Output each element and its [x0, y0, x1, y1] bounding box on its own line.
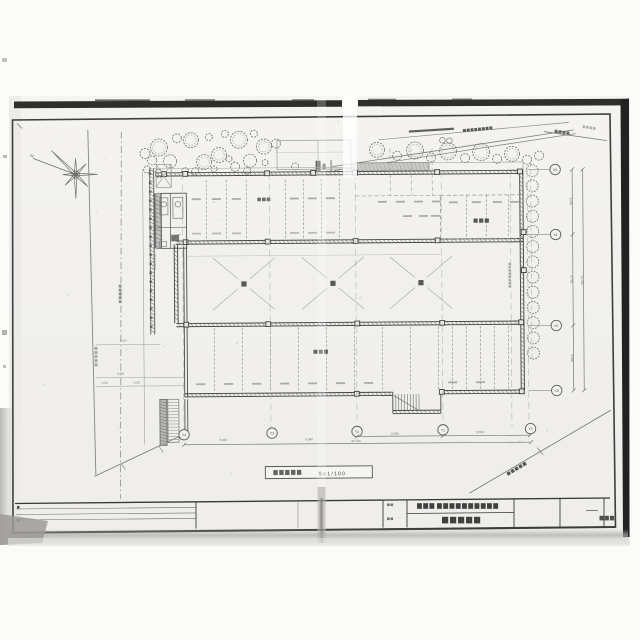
svg-text:Y2: Y2 [355, 430, 359, 434]
svg-text:92,700: 92,700 [351, 439, 361, 443]
svg-text:5,000: 5,000 [120, 339, 127, 343]
svg-text:5,000: 5,000 [101, 381, 108, 385]
svg-text:8,930: 8,930 [219, 438, 227, 442]
svg-text:Y5: Y5 [528, 427, 532, 431]
svg-text:N: N [30, 153, 33, 158]
svg-text:X5: X5 [555, 389, 559, 393]
svg-text:8,000: 8,000 [117, 372, 124, 376]
svg-text:8,350: 8,350 [476, 430, 484, 434]
svg-text:X6: X6 [553, 168, 557, 172]
svg-text:8,950: 8,950 [570, 355, 574, 363]
svg-text:Y1: Y1 [441, 428, 445, 432]
svg-text:8,960: 8,960 [305, 437, 313, 441]
svg-text:8,000: 8,000 [391, 432, 399, 436]
svg-text:8,250: 8,250 [569, 198, 573, 206]
svg-text:Y4: Y4 [182, 433, 186, 437]
svg-text:X1: X1 [553, 233, 557, 237]
svg-text:X2: X2 [554, 324, 558, 328]
svg-text:8,700: 8,700 [569, 276, 573, 284]
svg-text:5,000: 5,000 [133, 381, 140, 385]
svg-text:24,700: 24,700 [580, 276, 584, 286]
svg-text:Y3: Y3 [270, 432, 274, 436]
